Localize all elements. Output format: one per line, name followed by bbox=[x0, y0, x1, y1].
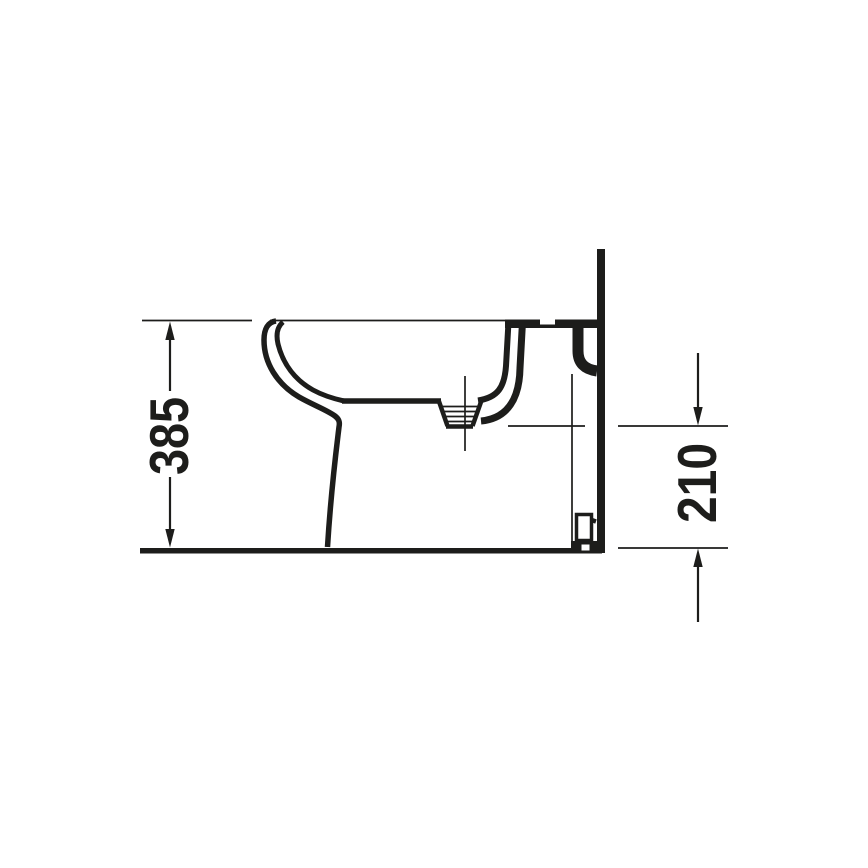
back-rim-fixing-notch bbox=[540, 320, 555, 325]
dimension-385-label: 385 bbox=[138, 397, 200, 475]
flush-channel-outer-curve bbox=[481, 322, 523, 421]
dimension-210: 210 bbox=[618, 353, 728, 622]
dimension-385: 385 bbox=[138, 321, 252, 548]
flush-channel bbox=[478, 322, 523, 421]
technical-drawing-page: 385 210 bbox=[0, 0, 868, 868]
floor-section-line bbox=[140, 548, 602, 554]
bidet-dimension-drawing: 385 210 bbox=[0, 0, 868, 868]
front-rim-outer-contour bbox=[264, 321, 339, 547]
dimension-210-arrow-up bbox=[693, 549, 702, 568]
dimension-210-label: 210 bbox=[666, 443, 728, 523]
wall-section-line bbox=[597, 249, 605, 553]
dimension-210-arrow-down bbox=[693, 407, 702, 426]
drain-outlet bbox=[439, 376, 482, 451]
flush-channel-inner-curve bbox=[478, 322, 509, 401]
drain-funnel-right-wall bbox=[473, 401, 482, 427]
wall-line bbox=[597, 249, 605, 553]
dimension-385-arrow-up bbox=[165, 322, 174, 341]
floor-line bbox=[140, 548, 602, 554]
mount-foot-notch bbox=[582, 545, 590, 551]
dimension-385-arrow-down bbox=[165, 529, 174, 548]
bidet-profile bbox=[264, 320, 605, 554]
back-rim-hook-contour bbox=[578, 326, 597, 371]
drain-funnel-left-wall bbox=[439, 400, 448, 426]
mount-fixing-hole bbox=[577, 515, 592, 541]
